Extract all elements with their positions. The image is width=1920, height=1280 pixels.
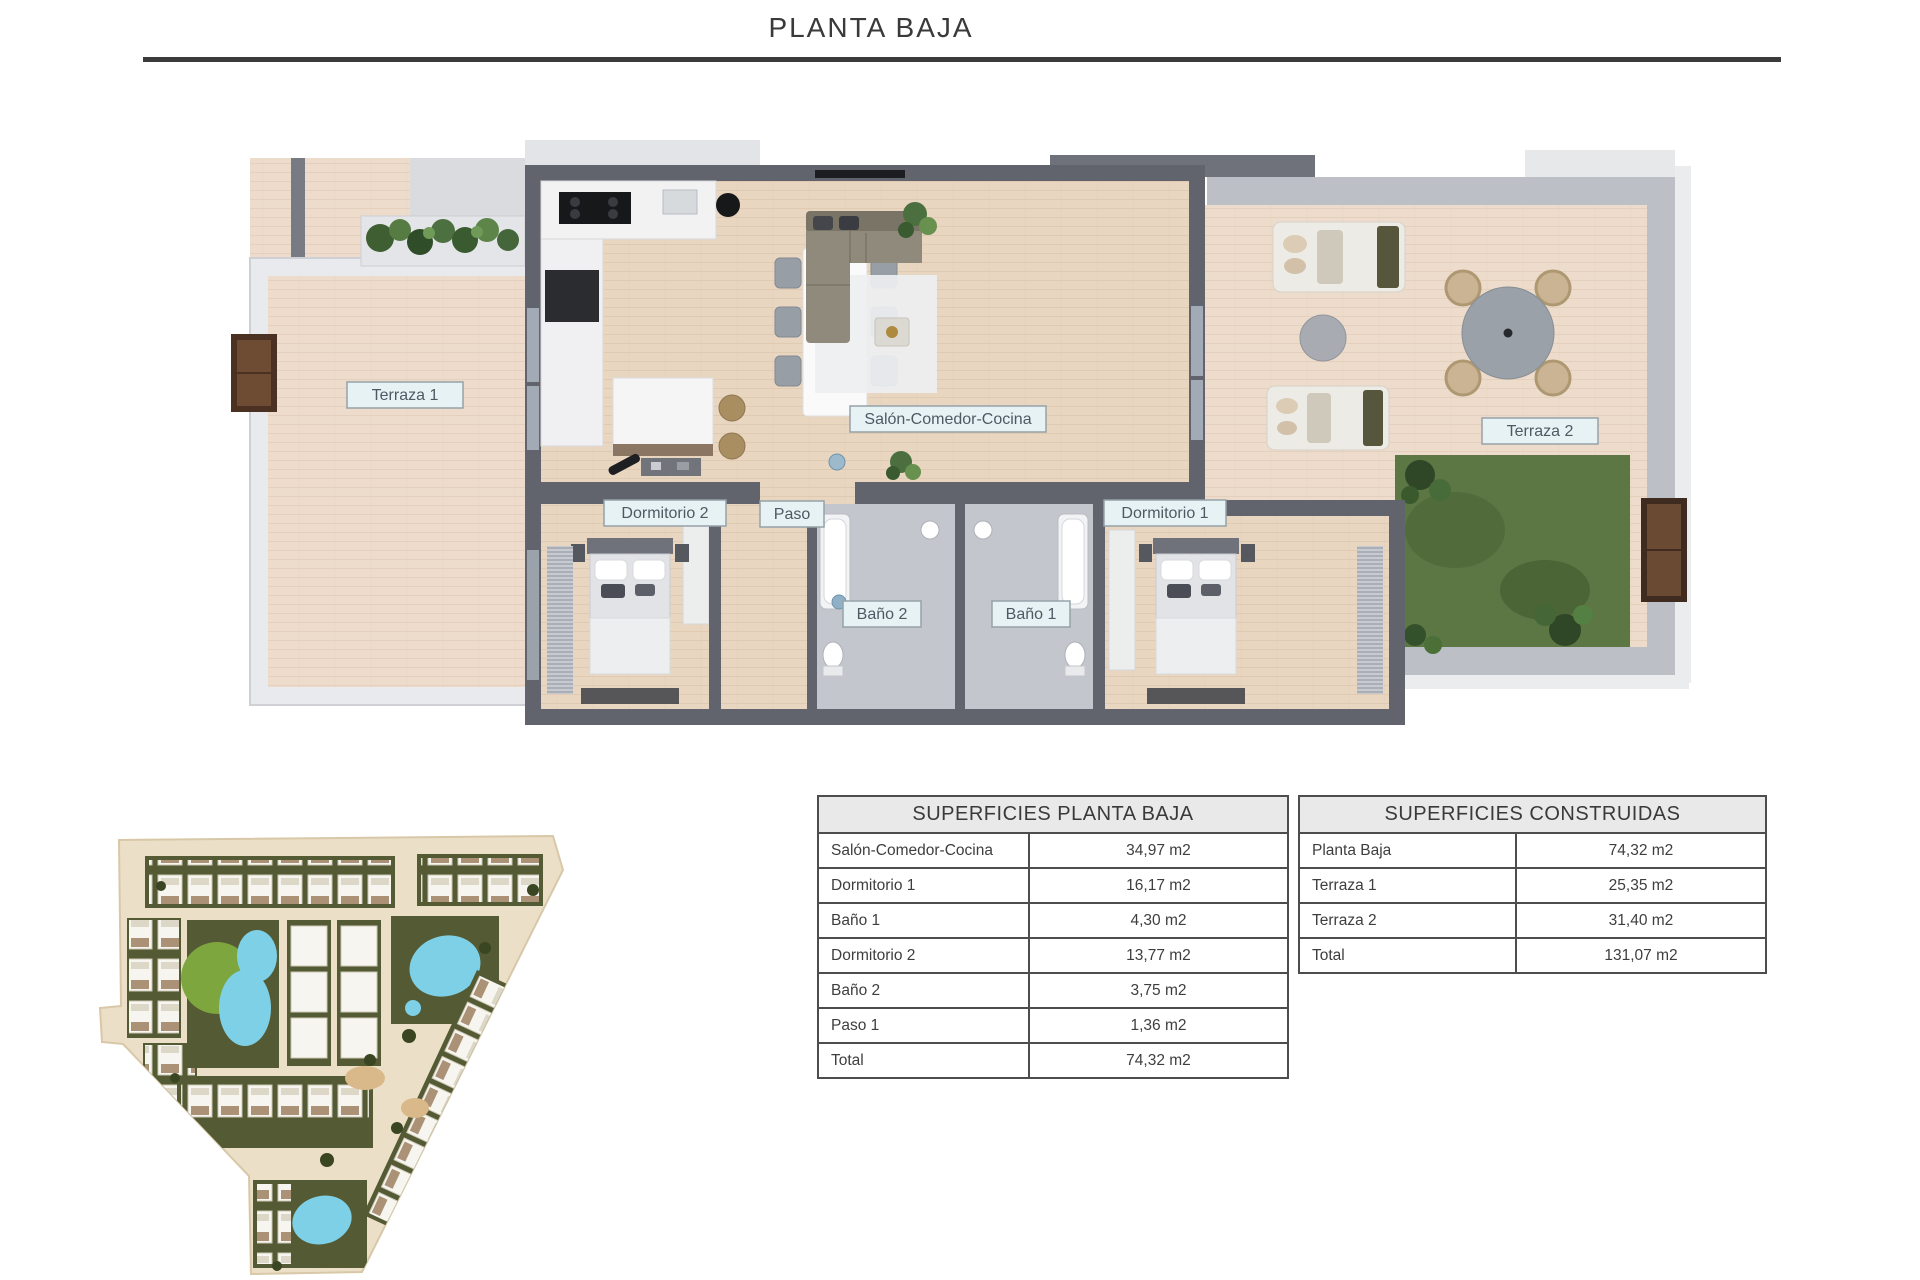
room-label-bano-1: Baño 1	[992, 601, 1070, 627]
washbasin	[974, 521, 992, 539]
svg-text:Dormitorio 1: Dormitorio 1	[1121, 505, 1208, 522]
row-value: 31,40 m2	[1517, 904, 1765, 937]
toilet	[823, 642, 843, 668]
site-plan-figure	[65, 828, 665, 1280]
row-value: 3,75 m2	[1030, 974, 1287, 1007]
park-pool	[181, 920, 279, 1068]
table-row: Baño 2 3,75 m2	[819, 974, 1287, 1009]
window	[527, 550, 539, 680]
floor-plan-page: PLANTA BAJA	[0, 0, 1920, 1280]
table-row: Total 131,07 m2	[1300, 939, 1765, 972]
post	[291, 158, 305, 260]
row-label: Dormitorio 2	[819, 939, 1030, 972]
row-label: Dormitorio 1	[819, 869, 1030, 902]
row-label: Salón-Comedor-Cocina	[819, 834, 1030, 867]
rug	[1147, 688, 1245, 704]
row-label: Baño 2	[819, 974, 1030, 1007]
terraza-2-top-wall	[1207, 177, 1675, 205]
sofa-chaise	[806, 231, 850, 343]
table-row: Baño 1 4,30 m2	[819, 904, 1287, 939]
oven	[545, 270, 599, 322]
room-label-salon: Salón-Comedor-Cocina	[850, 406, 1046, 432]
toilet-tank	[823, 666, 843, 676]
ceiling-lamp	[716, 193, 740, 217]
ottoman	[1300, 315, 1346, 361]
person	[829, 454, 845, 470]
glass-door	[1191, 380, 1203, 440]
glass-door	[1191, 306, 1203, 376]
svg-text:Baño 1: Baño 1	[1006, 606, 1057, 623]
superficies-planta-baja-table: SUPERFICIES PLANTA BAJA Salón-Comedor-Co…	[817, 795, 1289, 1079]
svg-text:Paso: Paso	[774, 506, 811, 523]
roof-slab	[1403, 675, 1689, 689]
table-row: Salón-Comedor-Cocina 34,97 m2	[819, 834, 1287, 869]
toilet-tank	[1065, 666, 1085, 676]
stool	[719, 433, 745, 459]
tv	[815, 170, 905, 178]
terraza-1-floor	[268, 276, 540, 687]
table-header: SUPERFICIES PLANTA BAJA	[819, 797, 1287, 834]
row-value: 16,17 m2	[1030, 869, 1287, 902]
svg-text:Salón-Comedor-Cocina: Salón-Comedor-Cocina	[864, 411, 1031, 428]
row-label: Total	[819, 1044, 1030, 1077]
grass-patch	[1395, 455, 1630, 654]
row-label: Paso 1	[819, 1009, 1030, 1042]
sun-lounger	[1273, 222, 1405, 292]
floor-plan-figure: Terraza 1 Salón-Comedor-Cocina Dormitori…	[215, 110, 1715, 740]
row-value: 131,07 m2	[1517, 939, 1765, 972]
row-value: 25,35 m2	[1517, 869, 1765, 902]
pool-3	[253, 1180, 367, 1268]
stool	[719, 395, 745, 421]
partition-wall	[1093, 504, 1105, 709]
shutter	[1357, 546, 1383, 694]
washbasin	[921, 521, 939, 539]
row-value: 4,30 m2	[1030, 904, 1287, 937]
room-label-terraza-2: Terraza 2	[1482, 418, 1598, 444]
svg-text:Dormitorio 2: Dormitorio 2	[621, 505, 708, 522]
room-label-dormitorio-2: Dormitorio 2	[604, 500, 726, 526]
page-title: PLANTA BAJA	[0, 12, 1742, 44]
planter	[361, 216, 525, 266]
partition-wall	[955, 504, 965, 709]
partition-wall	[709, 504, 721, 709]
room-label-terraza-1: Terraza 1	[347, 382, 463, 408]
row-label: Baño 1	[819, 904, 1030, 937]
sink	[663, 190, 697, 214]
glass-door	[527, 386, 539, 450]
room-label-dormitorio-1: Dormitorio 1	[1104, 500, 1226, 526]
island	[613, 378, 713, 452]
sun-lounger	[1267, 386, 1389, 450]
roof-slab	[525, 140, 760, 165]
row-value: 13,77 m2	[1030, 939, 1287, 972]
partition-wall	[807, 504, 817, 709]
row-value: 74,32 m2	[1030, 1044, 1287, 1077]
terraza-1-door	[231, 334, 277, 412]
roof-slab	[1525, 150, 1675, 177]
title-rule	[143, 57, 1781, 62]
terraza-2-bottom-wall	[1403, 647, 1675, 675]
glass-door	[527, 308, 539, 382]
table-header: SUPERFICIES CONSTRUIDAS	[1300, 797, 1765, 834]
lounge-set	[806, 211, 937, 393]
bathtub	[820, 514, 850, 609]
terraza-1-area	[231, 158, 540, 705]
row-label: Total	[1300, 939, 1517, 972]
room-label-paso: Paso	[760, 501, 824, 527]
shutter	[547, 546, 573, 694]
bathtub	[1058, 514, 1088, 609]
row-label: Terraza 2	[1300, 904, 1517, 937]
row-label: Terraza 1	[1300, 869, 1517, 902]
row-value: 1,36 m2	[1030, 1009, 1287, 1042]
table-row: Total 74,32 m2	[819, 1044, 1287, 1077]
table-row: Terraza 1 25,35 m2	[1300, 869, 1765, 904]
row-value: 74,32 m2	[1517, 834, 1765, 867]
roof-wedge	[410, 158, 537, 217]
wardrobe	[1109, 530, 1135, 670]
row-value: 34,97 m2	[1030, 834, 1287, 867]
table-row: Dormitorio 1 16,17 m2	[819, 869, 1287, 904]
svg-text:Terraza 1: Terraza 1	[372, 387, 439, 404]
terraza-2-door	[1641, 498, 1687, 602]
table-row: Planta Baja 74,32 m2	[1300, 834, 1765, 869]
table-row: Terraza 2 31,40 m2	[1300, 904, 1765, 939]
rug	[581, 688, 679, 704]
table-row: Paso 1 1,36 m2	[819, 1009, 1287, 1044]
table-row: Dormitorio 2 13,77 m2	[819, 939, 1287, 974]
outdoor-dining-set	[1446, 271, 1570, 395]
cooktop	[559, 192, 631, 224]
room-label-bano-2: Baño 2	[843, 601, 921, 627]
svg-text:Baño 2: Baño 2	[857, 606, 908, 623]
superficies-construidas-table: SUPERFICIES CONSTRUIDAS Planta Baja 74,3…	[1298, 795, 1767, 974]
row-label: Planta Baja	[1300, 834, 1517, 867]
roof-slab	[1675, 166, 1691, 683]
svg-text:Terraza 2: Terraza 2	[1507, 423, 1574, 440]
toilet	[1065, 642, 1085, 668]
